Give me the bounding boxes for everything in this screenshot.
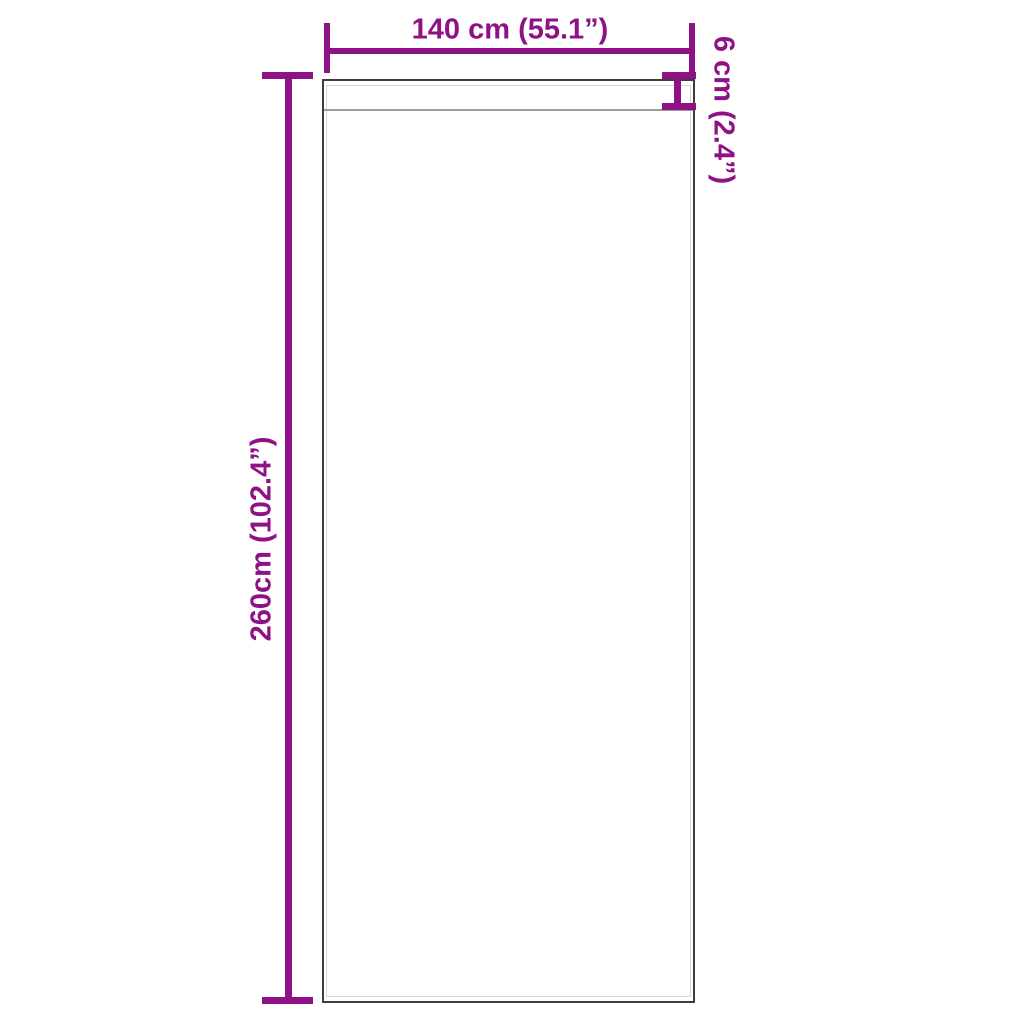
pocket-dimension-tick-bottom <box>662 103 696 110</box>
pocket-dimension-label: 6 cm (2.4”) <box>709 36 738 184</box>
width-dimension-line <box>324 48 695 54</box>
height-dimension-line <box>285 75 292 1002</box>
pocket-dimension-tick-top <box>662 72 696 79</box>
rod-pocket-seam-line <box>324 109 693 111</box>
curtain-panel-outline <box>322 79 695 1003</box>
panel-inner-outline <box>326 85 691 997</box>
width-dimension-label: 140 cm (55.1”) <box>412 16 609 45</box>
dimension-diagram: 140 cm (55.1”) 260cm (102.4”) 6 cm (2.4”… <box>0 0 1024 1024</box>
height-dimension-tick-bottom <box>262 997 313 1004</box>
width-dimension-tick-left <box>324 23 330 73</box>
height-dimension-tick-top <box>262 72 313 79</box>
height-dimension-label: 260cm (102.4”) <box>248 437 277 642</box>
width-dimension-tick-right <box>689 23 695 73</box>
